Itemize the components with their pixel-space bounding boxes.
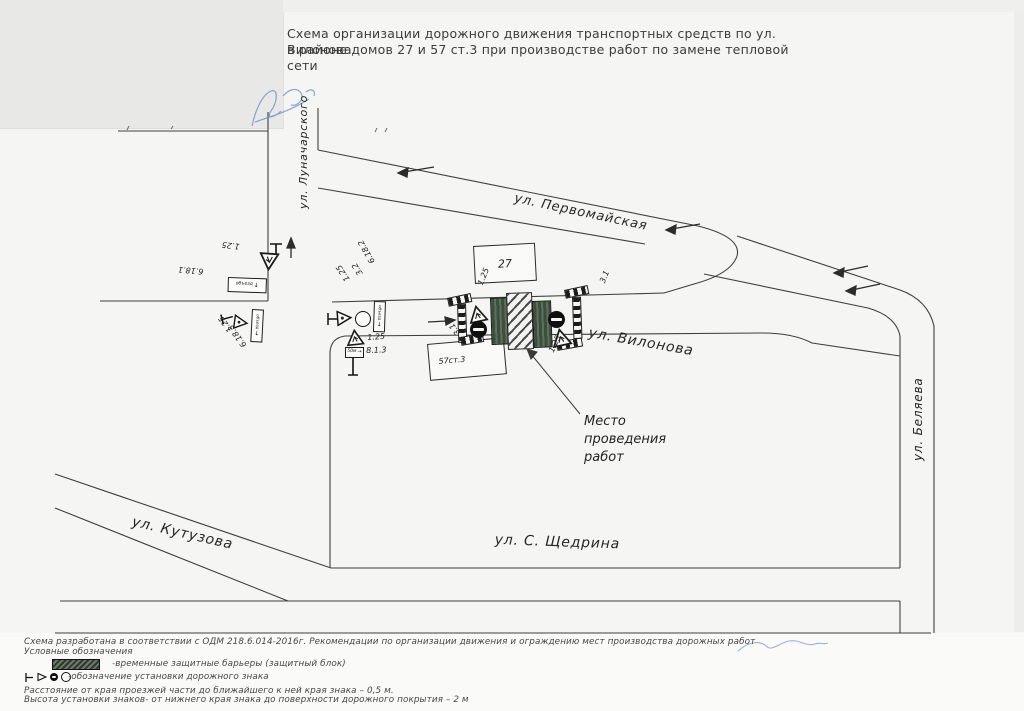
legend-basis-note: Схема разработана в соответствии с ОДМ 2… bbox=[24, 637, 755, 647]
building-27-label: 27 bbox=[498, 256, 513, 270]
street-label-belyaeva: ул. Беляева bbox=[911, 377, 925, 461]
worksite-annotation-line: работ bbox=[584, 449, 666, 467]
arrow-west-fork bbox=[666, 224, 700, 234]
plan-triangle-sign-symbol bbox=[335, 308, 353, 327]
sign-number-label: 1.25 bbox=[367, 332, 385, 342]
worksite-leader-line bbox=[527, 349, 580, 414]
no-entry-sign-east-icon bbox=[548, 311, 565, 328]
detour-plate-text: объезд bbox=[377, 306, 382, 321]
detour-plate-sign: объезд ↓ bbox=[227, 277, 266, 293]
sign-post-symbol bbox=[346, 356, 360, 378]
worksite-annotation-line: Место bbox=[584, 413, 666, 431]
worksite-hatched-area bbox=[506, 292, 534, 350]
legend-sign-post-item: -обозначение установки дорожного знака bbox=[68, 672, 269, 682]
arrow-west-ne-road-2 bbox=[846, 284, 880, 295]
checkered-barrier-strip bbox=[572, 297, 582, 339]
worksite-annotation: Место проведения работ bbox=[584, 413, 666, 467]
road-works-sign-inverted-icon bbox=[258, 251, 279, 271]
plan-circle-sign-symbol bbox=[355, 311, 371, 327]
arrow-north-lunacharskogo bbox=[287, 238, 295, 258]
legend-note-height: Высота установки знаков- от нижнего края… bbox=[24, 695, 469, 705]
down-arrow-icon: ↓ bbox=[254, 331, 259, 337]
road-works-sign-icon bbox=[345, 328, 365, 347]
arrow-west-ne-road-1 bbox=[834, 266, 868, 277]
detour-plate-sign: объезд ↓ bbox=[373, 301, 386, 332]
legend-heading: Условные обозначения bbox=[24, 647, 133, 657]
right-arrow-icon: → bbox=[357, 350, 361, 355]
down-arrow-icon: ↓ bbox=[377, 322, 382, 328]
distance-plate-text: 50м bbox=[347, 350, 356, 355]
no-entry-bar bbox=[551, 318, 562, 321]
no-entry-bar bbox=[473, 328, 484, 331]
plan-triangle-icon bbox=[37, 672, 47, 682]
worksite-annotation-line: проведения bbox=[584, 431, 666, 449]
down-arrow-icon: ↓ bbox=[254, 282, 259, 288]
no-entry-sign-west-icon bbox=[470, 321, 487, 338]
no-entry-icon bbox=[50, 673, 58, 681]
detour-plate-text: объезд bbox=[255, 315, 260, 330]
road-network-drawing bbox=[0, 0, 1024, 711]
detour-plate-sign: объезд ↓ bbox=[250, 309, 264, 343]
legend-sign-symbols bbox=[24, 671, 71, 683]
sign-number-label: 8.1.3 bbox=[366, 345, 387, 355]
detour-plate-text: объезд bbox=[236, 283, 253, 288]
legend-barriers-item: -временные защитные барьеры (защитный бл… bbox=[112, 659, 346, 669]
scheme-title-line-2: в районе домов 27 и 57 ст.3 при производ… bbox=[287, 42, 792, 74]
legend-barrier-icon bbox=[52, 659, 100, 670]
scanned-traffic-scheme: Схема организации дорожного движения тра… bbox=[0, 0, 1024, 711]
no-entry-bar bbox=[52, 676, 57, 678]
sign-post-icon bbox=[24, 672, 34, 683]
building-57-st3-label: 57ст.3 bbox=[438, 355, 466, 366]
street-label-lunacharskogo: ул. Луначарского bbox=[297, 95, 310, 209]
